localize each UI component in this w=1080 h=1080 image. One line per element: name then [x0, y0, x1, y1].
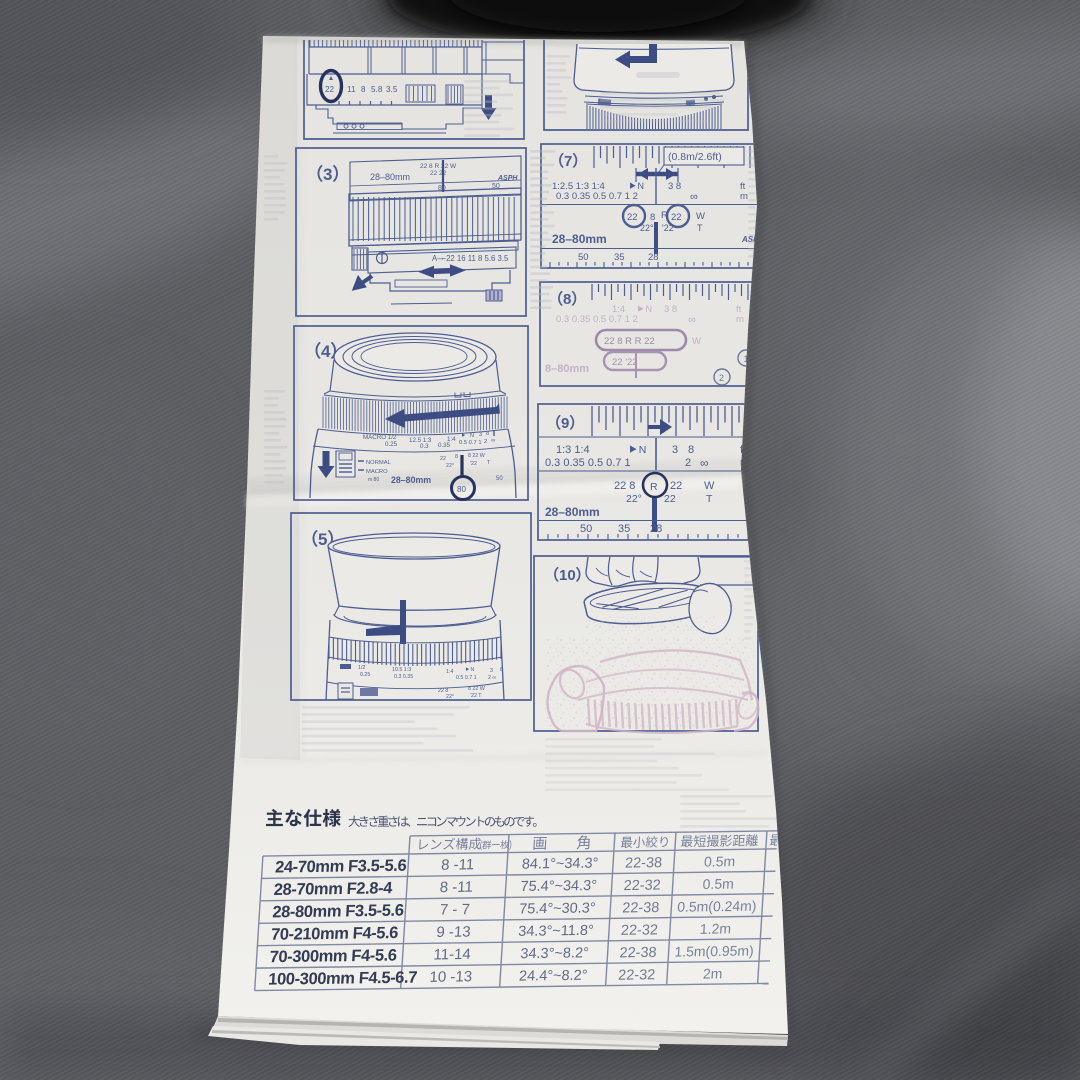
svg-text:80: 80 — [457, 485, 466, 494]
svg-text:m: m — [740, 191, 748, 202]
svg-text:0.5m: 0.5m — [702, 876, 734, 892]
svg-text:5.8: 5.8 — [371, 85, 383, 94]
svg-text:（9）: （9） — [546, 414, 584, 432]
svg-text:22-38: 22-38 — [619, 945, 657, 962]
svg-text:8–80mm: 8–80mm — [545, 363, 589, 375]
svg-text:28: 28 — [650, 523, 662, 535]
svg-text:8: 8 — [486, 431, 489, 437]
svg-text:3.5: 3.5 — [386, 85, 398, 94]
svg-text:22 '22: 22 '22 — [612, 357, 638, 368]
svg-text:50: 50 — [496, 476, 503, 482]
svg-text:22-32: 22-32 — [620, 922, 658, 939]
svg-text:22°: 22° — [626, 493, 642, 505]
svg-text:2: 2 — [484, 439, 487, 445]
svg-text:N: N — [646, 304, 653, 314]
svg-text:22 8 R R 22: 22 8 R R 22 — [604, 336, 655, 347]
svg-text:NORMAL: NORMAL — [366, 460, 392, 466]
svg-text:0.5m: 0.5m — [704, 853, 736, 869]
svg-text:2 ∞: 2 ∞ — [488, 675, 496, 681]
svg-text:11: 11 — [347, 85, 356, 94]
svg-text:22: 22 — [325, 85, 335, 94]
svg-text:3: 3 — [672, 444, 678, 456]
svg-text:0.5 0.7 1: 0.5 0.7 1 — [459, 440, 482, 446]
svg-text:11-14: 11-14 — [433, 946, 471, 964]
svg-text:R: R — [650, 481, 658, 493]
svg-text:22: 22 — [440, 456, 446, 462]
svg-text:2: 2 — [719, 373, 724, 383]
svg-text:22-38: 22-38 — [625, 855, 663, 872]
svg-text:T: T — [697, 223, 703, 233]
svg-text:8: 8 — [650, 212, 655, 223]
svg-text:35: 35 — [618, 523, 630, 535]
svg-text:28-80mm F3.5-5.6: 28-80mm F3.5-5.6 — [272, 901, 404, 922]
svg-text:34.3°~11.8°: 34.3°~11.8° — [518, 923, 594, 940]
svg-text:3 8: 3 8 — [668, 181, 681, 192]
svg-text:'22 T: '22 T — [470, 693, 482, 699]
svg-text:（8）: （8） — [548, 290, 586, 308]
svg-text:0.3: 0.3 — [420, 443, 429, 450]
svg-text:22°: 22° — [446, 463, 454, 469]
svg-text:8: 8 — [500, 667, 503, 673]
svg-text:84.1°~34.3°: 84.1°~34.3° — [521, 856, 598, 873]
svg-text:W: W — [704, 480, 715, 492]
svg-text:（3）: （3） — [306, 164, 349, 184]
svg-text:0.25: 0.25 — [385, 441, 398, 448]
svg-text:22: 22 — [670, 480, 682, 492]
svg-text:22 8 R 22 W: 22 8 R 22 W — [420, 163, 457, 170]
svg-text:N: N — [471, 667, 475, 673]
svg-text:28: 28 — [648, 252, 659, 263]
svg-text:1:4: 1:4 — [446, 669, 453, 675]
svg-text:（10）: （10） — [544, 566, 591, 584]
svg-text:10.5 1:3: 10.5 1:3 — [392, 667, 411, 673]
svg-text:T: T — [706, 493, 713, 505]
svg-text:22-32: 22-32 — [623, 878, 661, 895]
svg-text:（7）: （7） — [549, 152, 587, 170]
svg-text:100-300mm F4.5-6.7: 100-300mm F4.5-6.7 — [268, 968, 418, 989]
svg-text:8: 8 — [688, 444, 694, 456]
svg-text:28–80mm: 28–80mm — [552, 232, 607, 246]
svg-text:8 -11: 8 -11 — [439, 879, 473, 896]
svg-text:0.5m(0.24m): 0.5m(0.24m) — [677, 898, 757, 915]
svg-text:35: 35 — [614, 252, 625, 263]
svg-text:W: W — [696, 211, 705, 222]
svg-text:m: m — [736, 314, 744, 325]
svg-text:N: N — [639, 444, 647, 456]
svg-text:0.25: 0.25 — [360, 672, 370, 678]
svg-text:N: N — [470, 433, 474, 439]
svg-text:A–⌐22 16 11 8 5.6 3.5: A–⌐22 16 11 8 5.6 3.5 — [432, 254, 509, 263]
svg-text:1.5m(0.95m): 1.5m(0.95m) — [674, 942, 754, 959]
svg-text:m 80: m 80 — [368, 477, 379, 483]
svg-text:28–80mm: 28–80mm — [545, 505, 600, 519]
svg-text:28–80mm: 28–80mm — [391, 475, 431, 485]
svg-text:2m: 2m — [703, 965, 723, 981]
svg-text:3: 3 — [490, 668, 493, 674]
svg-text:'22: '22 — [470, 461, 477, 467]
svg-text:0.35: 0.35 — [438, 442, 451, 449]
svg-text:75.4°~34.3°: 75.4°~34.3° — [520, 878, 597, 895]
svg-text:22 8: 22 8 — [614, 480, 635, 492]
svg-text:10 -13: 10 -13 — [429, 968, 473, 986]
svg-text:MACRO: MACRO — [366, 469, 388, 475]
svg-text:22 22: 22 22 — [430, 170, 447, 177]
svg-text:28–80mm: 28–80mm — [370, 172, 410, 182]
svg-text:22: 22 — [664, 493, 676, 505]
svg-text:22-32: 22-32 — [618, 967, 656, 984]
svg-text:∞: ∞ — [690, 191, 698, 203]
svg-text:22-38: 22-38 — [622, 900, 660, 917]
svg-text:24.4°~8.2°: 24.4°~8.2° — [519, 968, 588, 985]
svg-text:1/2: 1/2 — [358, 665, 365, 671]
svg-text:8: 8 — [455, 454, 458, 460]
svg-text:70-210mm F4-5.6: 70-210mm F4-5.6 — [271, 923, 399, 944]
svg-text:0.3 0.35 0.5 0.7 1 2: 0.3 0.35 0.5 0.7 1 2 — [556, 314, 638, 325]
svg-text:50: 50 — [580, 523, 592, 535]
svg-text:7 - 7: 7 - 7 — [439, 901, 470, 918]
svg-text:0.3 0.35 0.5 0.7 1: 0.3 0.35 0.5 0.7 1 — [545, 457, 631, 469]
svg-text:0.3 0.35 0.5 0.7 1 2: 0.3 0.35 0.5 0.7 1 2 — [556, 191, 638, 202]
svg-text:'22: '22 — [662, 223, 674, 233]
svg-text:0.5 0.7 1: 0.5 0.7 1 — [456, 675, 477, 681]
svg-text:22: 22 — [627, 212, 638, 223]
svg-text:50: 50 — [578, 252, 589, 263]
svg-text:22: 22 — [671, 212, 682, 223]
svg-text:(0.8m/2.6ft): (0.8m/2.6ft) — [668, 151, 722, 163]
svg-text:22°: 22° — [446, 694, 454, 700]
svg-text:0.3 0.35: 0.3 0.35 — [394, 674, 413, 680]
svg-text:1.2m: 1.2m — [699, 920, 731, 936]
svg-text:75.4°~30.3°: 75.4°~30.3° — [519, 900, 596, 917]
svg-text:22°: 22° — [640, 223, 654, 233]
svg-text:N: N — [638, 181, 645, 191]
svg-text:2: 2 — [685, 457, 691, 469]
svg-text:8 22 W: 8 22 W — [468, 686, 485, 692]
svg-text:3: 3 — [479, 432, 482, 438]
svg-text:∞: ∞ — [700, 456, 709, 470]
svg-text:∞: ∞ — [688, 314, 696, 326]
svg-text:70-300mm F4-5.6: 70-300mm F4-5.6 — [269, 945, 397, 966]
svg-text:34.3°~8.2°: 34.3°~8.2° — [520, 945, 589, 962]
svg-text:8 22 W: 8 22 W — [468, 453, 485, 459]
svg-text:28-70mm F2.8-4: 28-70mm F2.8-4 — [273, 878, 394, 899]
svg-text:8 -11: 8 -11 — [441, 856, 475, 873]
svg-text:24-70mm F3.5-5.6: 24-70mm F3.5-5.6 — [275, 856, 407, 877]
svg-text:3 8: 3 8 — [664, 304, 677, 315]
svg-text:MACRO 1/2: MACRO 1/2 — [363, 434, 397, 441]
svg-text:1:3 1:4: 1:3 1:4 — [556, 444, 590, 456]
svg-text:W: W — [692, 336, 701, 347]
svg-text:9 -13: 9 -13 — [436, 924, 471, 941]
svg-text:8: 8 — [361, 85, 366, 94]
svg-text:∞: ∞ — [491, 438, 495, 444]
